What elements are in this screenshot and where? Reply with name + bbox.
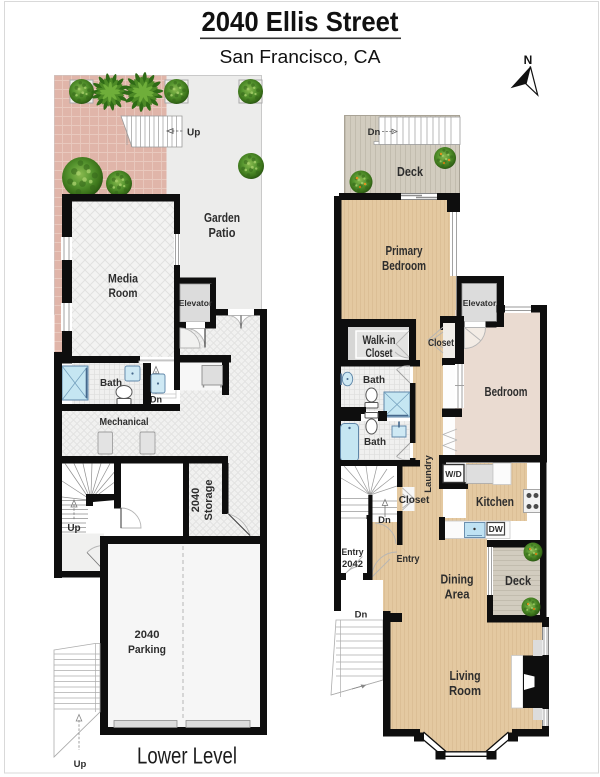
svg-text:Laundry: Laundry bbox=[423, 455, 434, 493]
svg-text:Dn: Dn bbox=[150, 395, 162, 405]
svg-text:N: N bbox=[524, 53, 533, 67]
svg-text:Bedroom: Bedroom bbox=[485, 385, 528, 399]
svg-text:Bath: Bath bbox=[364, 436, 386, 448]
svg-text:Garden: Garden bbox=[204, 211, 240, 225]
svg-text:Mechanical: Mechanical bbox=[100, 416, 149, 428]
svg-text:Patio: Patio bbox=[209, 226, 236, 240]
svg-text:W/D: W/D bbox=[445, 469, 462, 479]
svg-text:Bath: Bath bbox=[363, 374, 385, 386]
svg-text:Dining: Dining bbox=[441, 573, 474, 587]
svg-text:Closet: Closet bbox=[366, 348, 393, 360]
svg-text:Living: Living bbox=[450, 669, 481, 683]
svg-text:Entry: Entry bbox=[342, 547, 365, 558]
svg-text:Deck: Deck bbox=[505, 574, 531, 588]
svg-text:Elevator: Elevator bbox=[463, 298, 497, 308]
svg-text:Up: Up bbox=[187, 128, 200, 139]
svg-text:Walk-in: Walk-in bbox=[363, 335, 396, 347]
svg-text:Primary: Primary bbox=[386, 244, 423, 258]
svg-text:2040 Ellis Street: 2040 Ellis Street bbox=[202, 6, 399, 37]
svg-text:San Francisco, CA: San Francisco, CA bbox=[220, 47, 381, 67]
svg-text:Entry: Entry bbox=[397, 554, 420, 565]
svg-text:Up: Up bbox=[67, 523, 80, 534]
svg-text:2040: 2040 bbox=[135, 629, 160, 641]
svg-text:Closet: Closet bbox=[428, 338, 455, 349]
svg-text:Dn: Dn bbox=[378, 515, 391, 526]
svg-text:2042: 2042 bbox=[342, 559, 363, 570]
svg-text:Dn: Dn bbox=[368, 127, 381, 138]
svg-text:Room: Room bbox=[109, 286, 138, 300]
svg-text:Elevator: Elevator bbox=[179, 298, 213, 308]
svg-text:Bedroom: Bedroom bbox=[382, 259, 426, 273]
svg-text:Dn: Dn bbox=[355, 610, 368, 621]
svg-text:Room: Room bbox=[449, 684, 481, 698]
svg-text:Area: Area bbox=[445, 588, 471, 602]
svg-text:Deck: Deck bbox=[397, 165, 423, 179]
svg-text:Media: Media bbox=[108, 272, 138, 286]
svg-text:Parking: Parking bbox=[128, 644, 166, 656]
svg-text:Kitchen: Kitchen bbox=[476, 495, 514, 509]
svg-text:2040: 2040 bbox=[190, 488, 202, 512]
svg-text:DW: DW bbox=[489, 524, 504, 534]
svg-text:Lower Level: Lower Level bbox=[137, 743, 237, 769]
svg-text:Storage: Storage bbox=[203, 480, 215, 521]
svg-text:Closet: Closet bbox=[399, 495, 430, 506]
svg-text:Up: Up bbox=[74, 759, 87, 770]
